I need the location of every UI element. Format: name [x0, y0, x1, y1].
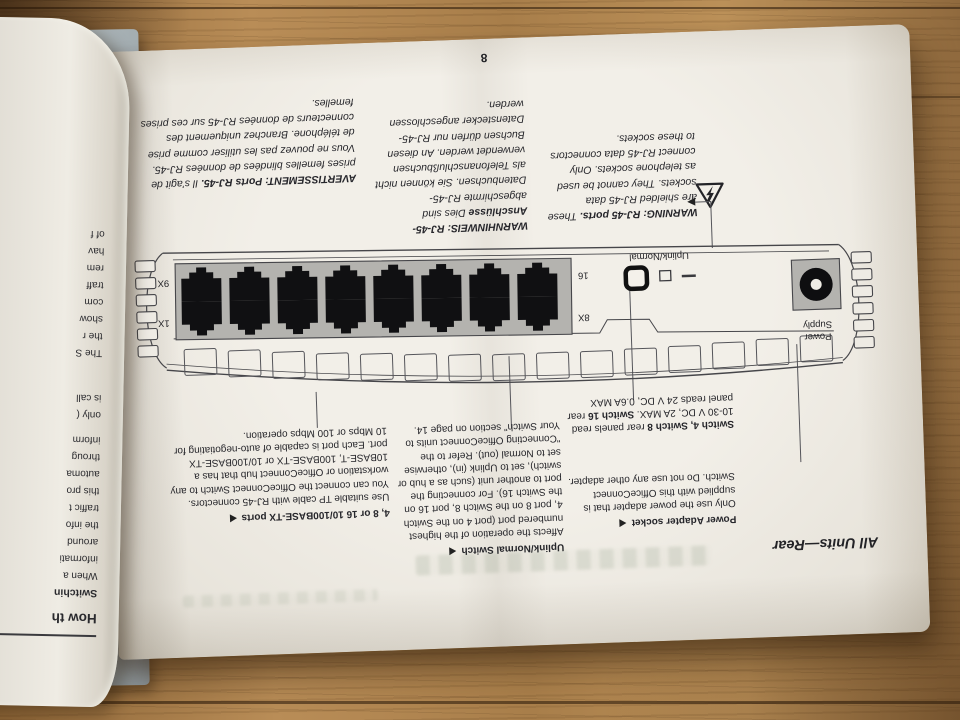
right-cap-ribs: [851, 251, 874, 348]
warning-german-body: Dies sind abgeschirmte RJ-45-Datenbuchse…: [375, 98, 527, 220]
warning-french: AVERTISSEMENT: Ports RJ-45. Il s'agit de…: [135, 93, 356, 192]
uplink-label: Uplink/Normal: [629, 249, 689, 262]
port-label-9x: 9X: [157, 277, 169, 288]
left-page-folded: How th Switchin When a informati around …: [0, 16, 131, 707]
callout-power: Power Adapter socket Only use the power …: [563, 466, 737, 531]
power-label-line1: Power: [804, 330, 831, 342]
uplink-switch-group: Uplink/Normal: [625, 249, 696, 289]
fragment-line: The S: [0, 342, 102, 362]
fragment-line: of f: [0, 223, 105, 243]
switch-rear-diagram: 9X 1X 16 8X Uplink/Normal Supply Power: [122, 213, 888, 429]
fragment-line: this pro: [0, 480, 99, 500]
section-heading: All Units—Rear: [738, 533, 878, 554]
heading-rule: [0, 633, 96, 637]
wood-plank-gap-top: [0, 7, 960, 9]
warning-english: WARNING: RJ-45 ports. These are shielded…: [545, 128, 698, 224]
switch-out-pictogram: [660, 270, 671, 280]
fragment-line: informati: [0, 548, 98, 568]
port-label-16: 16: [578, 270, 589, 281]
ink-showthrough-strip: [183, 589, 378, 608]
callout-ports-body: Use suitable TP cable with RJ-45 connect…: [167, 423, 390, 510]
fragment-line: rem: [0, 257, 104, 277]
fragment-line: around: [0, 531, 98, 551]
fragment-line: automa: [0, 463, 100, 483]
left-page-text-fragments: How th Switchin When a informati around …: [0, 29, 109, 695]
fragment-line: traffic t: [0, 497, 99, 517]
fragment-line: traff: [0, 274, 104, 294]
callout-power-body: Only use the power adapter that is suppl…: [563, 469, 736, 515]
note-switch-16: Switch 16: [588, 408, 634, 421]
port-label-1x: 1X: [157, 317, 169, 328]
port-label-8x: 8X: [577, 311, 589, 322]
rj45-port-block: 9X 1X 16 8X: [157, 258, 590, 340]
manual-page: 8 AVERTISSEMENT: Ports RJ-45. Il s'agit …: [98, 24, 931, 660]
callout-uplink: Uplink/Normal Switch Affects the operati…: [392, 415, 565, 559]
fragment-line: the r: [0, 325, 103, 345]
fragment-chapter-heading: How th: [0, 606, 97, 629]
fragment-line: only (: [0, 404, 101, 424]
fragment-line: throug: [0, 446, 100, 466]
uplink-switch-button: [625, 267, 647, 289]
callout-power-heading: Power Adapter socket: [564, 512, 736, 531]
power-label-line2: Supply: [803, 318, 833, 330]
warning-french-heading: AVERTISSEMENT: Ports RJ-45.: [201, 172, 357, 189]
power-ratings-note: Switch 4, Switch 8 rear panels read 10-3…: [561, 390, 734, 436]
fragment-line: the info: [0, 514, 99, 534]
wood-plank-gap-right: [906, 96, 960, 98]
note-switch-4-8: Switch 4, Switch 8: [647, 418, 734, 432]
fragment-line: inform: [0, 429, 101, 449]
fragment-subheading: Switchin: [0, 582, 97, 602]
fragment-line: When a: [0, 565, 98, 585]
warning-german: WARNHINWEIS: RJ-45-Anschlüsse Dies sind …: [366, 96, 529, 238]
photo-scene: 8 AVERTISSEMENT: Ports RJ-45. Il s'agit …: [0, 0, 960, 720]
power-socket-group: Supply Power: [791, 259, 842, 343]
page-number: 8: [474, 51, 494, 66]
callout-arrowhead: [687, 198, 695, 206]
callout-ports: 4, 8 or 16 10/100BASE-TX ports Use suita…: [167, 420, 390, 526]
fragment-line: com: [0, 291, 103, 311]
wood-plank-gap-bottom: [0, 701, 960, 704]
fragment-line: hav: [0, 240, 105, 260]
callout-uplink-body: Affects the operation of the highest num…: [392, 418, 564, 542]
fragment-line: show: [0, 308, 103, 328]
fragment-line: is call: [0, 387, 101, 407]
